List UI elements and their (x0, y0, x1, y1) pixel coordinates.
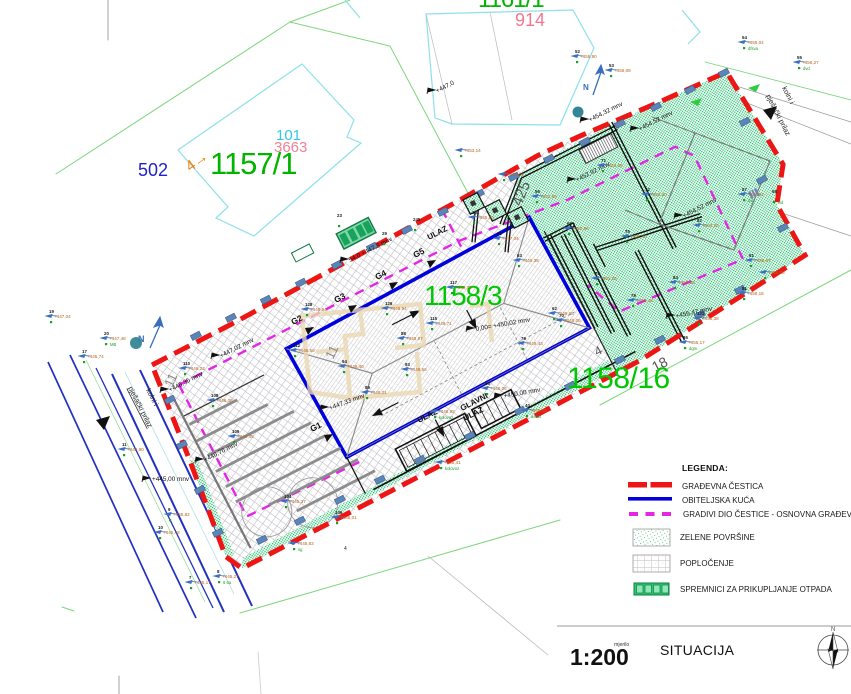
svg-text:+446,92: +446,92 (438, 409, 455, 414)
svg-text:+445,01: +445,01 (340, 515, 357, 520)
svg-text:+445,00 mnv: +445,00 mnv (152, 476, 190, 483)
svg-text:sg: sg (298, 547, 303, 552)
svg-text:+445,74: +445,74 (87, 354, 104, 359)
svg-text:+449,78: +449,78 (455, 285, 472, 290)
svg-text:+449,68: +449,68 (557, 311, 574, 316)
svg-text:+447,04: +447,04 (54, 314, 71, 319)
svg-text:+445,27: +445,27 (222, 574, 239, 579)
svg-text:+447,48: +447,48 (109, 336, 126, 341)
svg-text:+458,04: +458,04 (747, 192, 764, 197)
svg-text:+446,56: +446,56 (298, 348, 315, 353)
svg-text:4: 4 (344, 546, 347, 552)
svg-text:+456,18: +456,18 (747, 291, 764, 296)
svg-text:+446,23: +446,23 (188, 366, 205, 371)
svg-text:GRAĐEVNA ČESTICA: GRAĐEVNA ČESTICA (682, 482, 764, 491)
svg-text:1161/1: 1161/1 (478, 0, 544, 13)
svg-text:dfsva: dfsva (748, 46, 759, 51)
svg-text:+450,48: +450,48 (636, 298, 653, 303)
svg-text:+453,06: +453,06 (606, 163, 623, 168)
svg-text:+455,97: +455,97 (754, 258, 771, 263)
svg-text:245: 245 (413, 217, 421, 222)
svg-text:502: 502 (138, 160, 168, 180)
svg-text:kolovoz: kolovoz (439, 415, 453, 420)
svg-text:+453,63: +453,63 (507, 172, 524, 177)
svg-text:+447,04: +447,04 (502, 236, 519, 241)
svg-text:GRADIVI DIO ČESTICE - OSNOVNA: GRADIVI DIO ČESTICE - OSNOVNA GRAĐEVINA (683, 510, 851, 519)
svg-text:+453,20: +453,20 (650, 192, 667, 197)
svg-text:+451,28: +451,28 (600, 276, 617, 281)
svg-text:+448,94: +448,94 (390, 306, 407, 311)
svg-text:POPLOČENJE: POPLOČENJE (680, 559, 734, 568)
svg-text:+448,94: +448,94 (310, 307, 327, 312)
svg-text:+449,06: +449,06 (564, 318, 581, 323)
svg-text:+451,40: +451,40 (630, 234, 647, 239)
svg-text:+452,88: +452,88 (540, 194, 557, 199)
svg-text:+448,56: +448,56 (410, 367, 427, 372)
svg-text:+456,08: +456,08 (614, 68, 631, 73)
svg-text:OBITELJSKA KUĆA: OBITELJSKA KUĆA (682, 496, 755, 505)
svg-text:+445,17: +445,17 (194, 580, 211, 585)
svg-text:dgm: dgm (689, 346, 698, 351)
svg-text:1:200: 1:200 (570, 644, 629, 670)
svg-text:+445,37: +445,37 (289, 499, 306, 504)
svg-text:+448,06: +448,06 (490, 386, 507, 391)
svg-text:+455,17: +455,17 (688, 340, 705, 345)
svg-text:+448,01: +448,01 (370, 390, 387, 395)
svg-text:+448,90: +448,90 (127, 447, 144, 452)
svg-text:SITUACIJA: SITUACIJA (660, 642, 735, 658)
svg-text:MB: MB (110, 342, 116, 347)
svg-text:3663: 3663 (274, 139, 307, 156)
svg-text:+456,08: +456,08 (768, 270, 785, 275)
svg-text:+455,38: +455,38 (702, 316, 719, 321)
svg-text:LEGENDA:: LEGENDA: (682, 463, 728, 473)
svg-text:58: 58 (772, 189, 777, 194)
svg-text:+446,45: +446,45 (237, 434, 254, 439)
svg-text:+445,82: +445,82 (173, 512, 190, 517)
svg-text:23: 23 (337, 213, 342, 218)
svg-text:+448,87: +448,87 (406, 336, 423, 341)
svg-text:+453,30: +453,30 (678, 280, 695, 285)
svg-text:N: N (583, 83, 589, 92)
svg-text:+455,90: +455,90 (580, 54, 597, 59)
svg-text:+445,83: +445,83 (297, 541, 314, 546)
svg-text:914: 914 (515, 10, 545, 30)
svg-text:+450,96: +450,96 (572, 226, 589, 231)
svg-text:1158/16: 1158/16 (567, 362, 670, 395)
svg-text:+449,38: +449,38 (522, 258, 539, 263)
svg-text:+454,20: +454,20 (702, 223, 719, 228)
svg-text:+453,14: +453,14 (464, 148, 481, 153)
svg-text:+448,00: +448,00 (530, 408, 547, 413)
svg-text:dvd: dvd (748, 198, 755, 203)
svg-text:asfalt: asfalt (531, 414, 542, 419)
svg-text:SPREMNICI ZA PRIKUPLJANJE OTPA: SPREMNICI ZA PRIKUPLJANJE OTPADA (680, 585, 833, 594)
svg-text:+456,27: +456,27 (802, 60, 819, 65)
svg-text:dvd: dvd (803, 66, 810, 71)
svg-text:29: 29 (382, 231, 387, 236)
svg-text:+448,40: +448,40 (347, 364, 364, 369)
svg-text:+445,48: +445,48 (163, 530, 180, 535)
svg-text:+449,43: +449,43 (526, 341, 543, 346)
svg-text:+446,08: +446,08 (216, 398, 233, 403)
svg-text:N: N (831, 627, 835, 633)
svg-text:+445,41: +445,41 (444, 460, 461, 465)
svg-text:6 6a: 6 6a (223, 580, 232, 585)
svg-text:zid: zid (778, 200, 784, 205)
svg-text:+455,04: +455,04 (747, 40, 764, 45)
svg-text:kolovoz: kolovoz (445, 466, 459, 471)
svg-text:ZELENE POVRŠINE: ZELENE POVRŠINE (680, 533, 755, 542)
svg-text:+445,80: +445,80 (477, 215, 494, 220)
svg-text:+449,71: +449,71 (435, 321, 452, 326)
